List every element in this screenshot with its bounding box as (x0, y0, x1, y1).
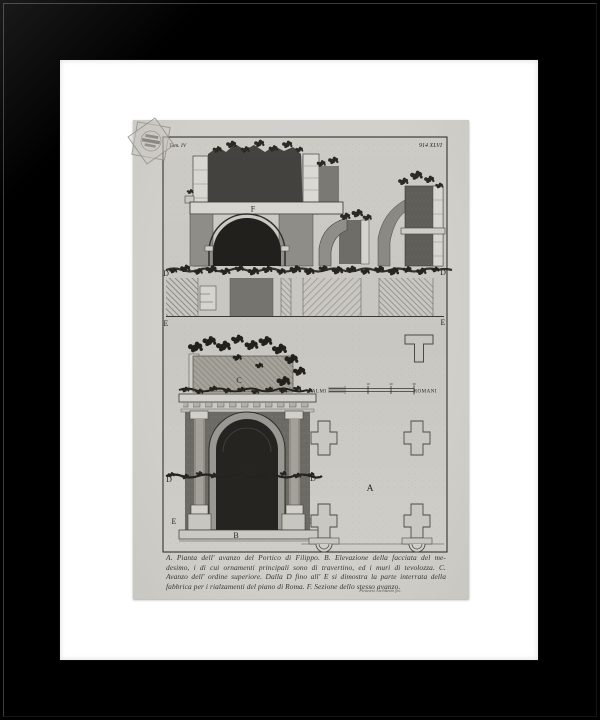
label-e-facade-left: E (172, 517, 177, 526)
scale-tick-label: 20 (389, 382, 393, 386)
scale-tick-label: 30 (412, 382, 416, 386)
label-a: A (367, 484, 374, 494)
etching-artwork: Tom. IV 914 XLVI (133, 120, 469, 599)
artist-signature: Piranesi Architetto fec. (323, 588, 438, 593)
plate-caption: A. Pianta dell' avanzo del Portico di Fi… (166, 553, 446, 591)
label-d-top-right: D (440, 268, 446, 277)
scale-tick-label: 10 (366, 382, 370, 386)
caption-line-1: A. Pianta dell' avanzo del Portico di Fi… (166, 553, 446, 563)
label-d-facade-right: D (310, 474, 316, 483)
scale-right-label: ROMANI (414, 390, 437, 395)
mat-board: Tom. IV 914 XLVI (60, 60, 538, 660)
label-e-top-right: E (441, 318, 446, 327)
label-b: B (233, 531, 238, 540)
plate-number-label: 914 XLVI (419, 142, 443, 149)
buried-wall-section (166, 278, 444, 317)
label-f: F (251, 205, 256, 214)
picture-frame: Tom. IV 914 XLVI (0, 0, 600, 720)
etching-print: Tom. IV 914 XLVI (133, 120, 469, 599)
label-d-top-left: D (163, 269, 169, 278)
label-c: C (236, 376, 241, 385)
caption-line-2: desimo, i di cui ornamenti principali so… (166, 563, 446, 573)
label-d-facade-left: D (166, 475, 172, 484)
caption-line-3: Avanzo dell' ordine superiore. Dalla D f… (166, 572, 446, 582)
label-e-top-left: E (164, 319, 169, 328)
